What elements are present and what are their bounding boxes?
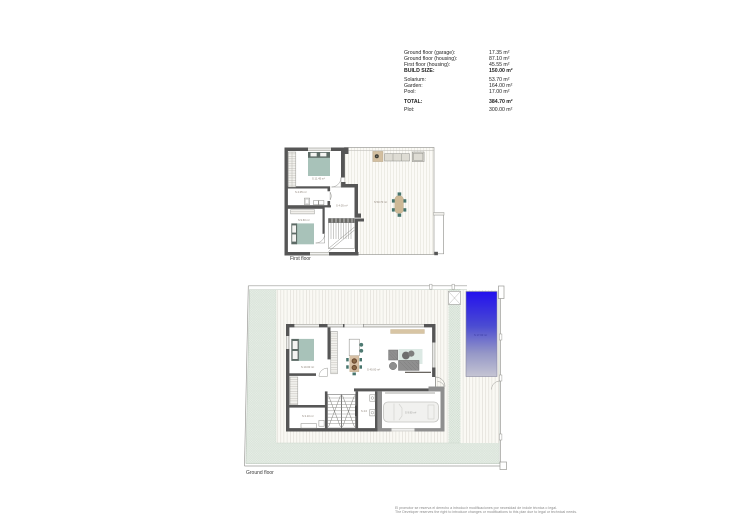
svg-text:S 3.10 m²: S 3.10 m² (302, 414, 314, 418)
svg-text:S 40.00 m²: S 40.00 m² (367, 368, 380, 372)
svg-text:S 4.05 m²: S 4.05 m² (336, 204, 348, 208)
svg-text:S 11.45 m²: S 11.45 m² (312, 177, 325, 181)
svg-text:S 9.60 m²: S 9.60 m² (298, 218, 310, 222)
svg-text:S 10.00 m²: S 10.00 m² (301, 365, 314, 369)
svg-text:S 4.0: S 4.0 (361, 409, 368, 413)
svg-text:S 17.00 m²: S 17.00 m² (474, 333, 487, 337)
svg-text:S 4.05 m²: S 4.05 m² (295, 190, 307, 194)
svg-text:S 9.90 m²: S 9.90 m² (405, 411, 416, 415)
svg-text:S 53.70 m²: S 53.70 m² (374, 200, 387, 204)
